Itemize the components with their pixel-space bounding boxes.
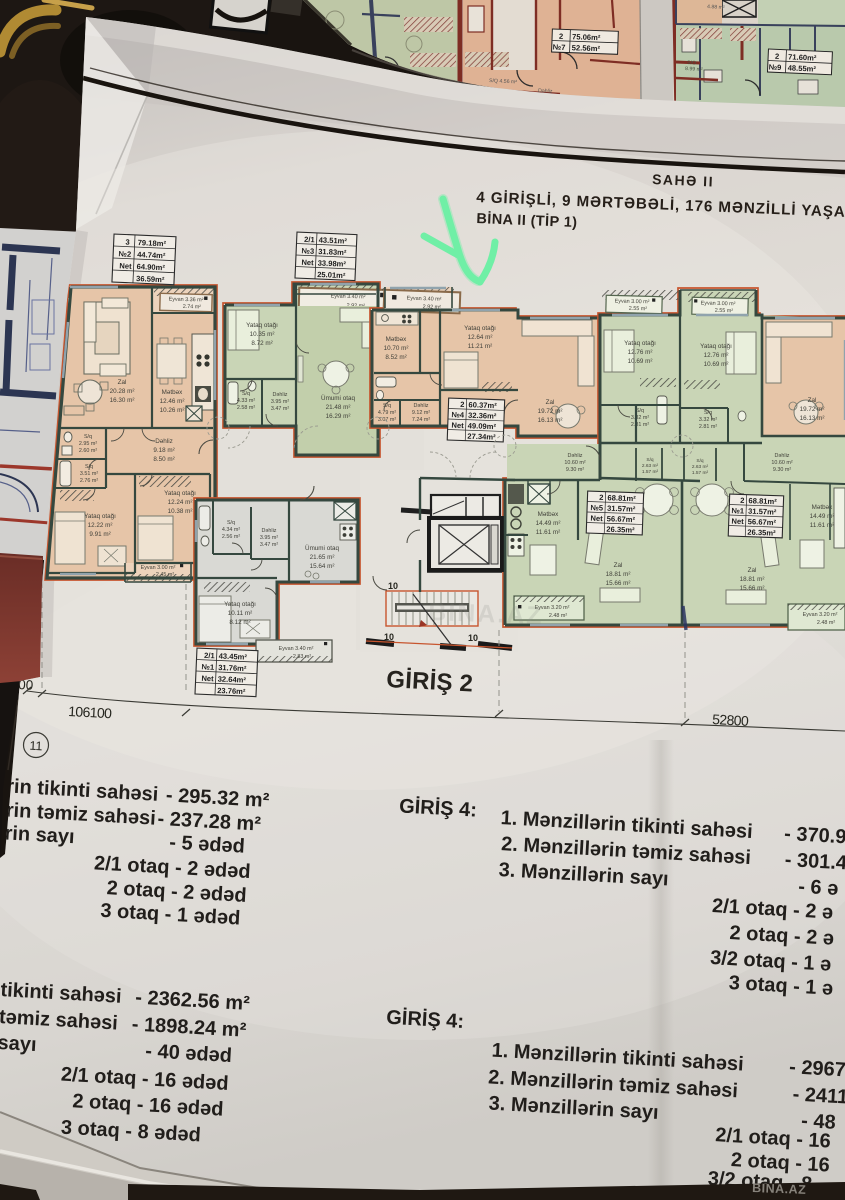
svg-text:19.72 m²: 19.72 m² [800,406,825,413]
svg-text:18.81 m²: 18.81 m² [740,576,765,583]
svg-text:1.57 m²: 1.57 m² [692,470,709,476]
svg-text:21.48 m²: 21.48 m² [326,404,351,411]
svg-text:3.47 m²: 3.47 m² [260,542,278,548]
svg-text:12.24 m²: 12.24 m² [168,499,193,506]
svg-text:20.28 m²: 20.28 m² [110,388,135,395]
svg-text:№1: №1 [731,506,745,515]
svg-text:21.65 m²: 21.65 m² [310,554,335,561]
svg-text:S/q: S/q [646,457,654,463]
svg-text:56.67m²: 56.67m² [748,517,777,527]
svg-text:44.74m²: 44.74m² [137,250,166,260]
svg-text:BINA.AZ: BINA.AZ [752,1181,807,1197]
svg-text:2.48 m²: 2.48 m² [817,620,835,626]
svg-text:Eyvan 3.40 m²: Eyvan 3.40 m² [279,646,314,652]
svg-text:1.57 m²: 1.57 m² [642,469,659,475]
svg-text:25.01m²: 25.01m² [317,270,346,280]
svg-text:GİRİŞ 4:: GİRİŞ 4: [386,1006,465,1033]
svg-text:2: 2 [559,32,564,41]
svg-text:16.13 m²: 16.13 m² [538,417,563,424]
svg-text:2.63 m²: 2.63 m² [692,464,709,470]
svg-text:8.52 m²: 8.52 m² [385,354,406,361]
svg-text:Ümumi otaq: Ümumi otaq [321,394,355,402]
svg-text:12.76 m²: 12.76 m² [628,349,653,356]
svg-text:2.48 m²: 2.48 m² [549,613,567,619]
svg-text:19.72 m²: 19.72 m² [538,408,563,415]
svg-text:8.72 m²: 8.72 m² [251,340,272,347]
svg-text:Net: Net [731,517,744,526]
svg-text:S/q: S/q [696,458,704,464]
svg-text:Eyvan 3.20 m²: Eyvan 3.20 m² [803,612,838,618]
svg-text:43.51m²: 43.51m² [318,235,347,245]
svg-text:BINA.AZ: BINA.AZ [428,598,544,630]
svg-text:SAHƏ II: SAHƏ II [652,171,714,189]
svg-text:2.81 m²: 2.81 m² [631,422,649,428]
svg-text:Net: Net [590,514,603,523]
svg-text:GİRİŞ 2: GİRİŞ 2 [386,666,474,698]
svg-text:№5: №5 [590,503,604,512]
svg-text:№2: №2 [118,249,131,259]
svg-text:Zal: Zal [614,562,623,569]
svg-text:- 5 ədəd: - 5 ədəd [169,832,246,858]
svg-text:Dəhliz: Dəhliz [155,438,173,445]
svg-text:14.49 m²: 14.49 m² [536,520,561,527]
svg-text:10.69 m²: 10.69 m² [628,358,653,365]
svg-text:Eyvan 3.00 m²: Eyvan 3.00 m² [615,298,650,305]
svg-text:Dəhliz: Dəhliz [414,403,429,409]
svg-text:27.34m²: 27.34m² [467,432,496,442]
svg-text:Eyvan 3.00 m²: Eyvan 3.00 m² [701,300,736,307]
svg-text:16.30 m²: 16.30 m² [110,397,135,404]
svg-text:2.60 m²: 2.60 m² [79,448,97,454]
svg-text:Zal: Zal [808,397,817,404]
svg-text:Yataq otağı: Yataq otağı [164,490,196,497]
svg-text:2: 2 [599,493,604,502]
svg-text:26.35m²: 26.35m² [747,528,776,538]
svg-text:36.59m²: 36.59m² [136,274,165,284]
svg-text:№9: №9 [768,63,781,73]
svg-text:Yataq otağı: Yataq otağı [624,340,656,347]
svg-text:Net: Net [451,421,464,430]
svg-text:2: 2 [775,52,780,61]
svg-text:Ümumi otaq: Ümumi otaq [305,544,339,552]
svg-text:7.24 m²: 7.24 m² [412,417,430,423]
svg-text:Yataq otağı: Yataq otağı [224,601,256,608]
svg-text:71.60m²: 71.60m² [788,52,817,62]
svg-text:Mətbəx: Mətbəx [538,511,560,518]
svg-text:10.26 m²: 10.26 m² [160,407,185,414]
svg-text:4.33 m²: 4.33 m² [237,398,255,404]
svg-text:Net: Net [119,261,132,271]
svg-text:2.95 m²: 2.95 m² [79,441,97,447]
svg-text:15.66 m²: 15.66 m² [606,580,631,587]
svg-text:12.76 m²: 12.76 m² [704,352,729,359]
svg-text:23.76m²: 23.76m² [217,686,246,696]
svg-text:№7: №7 [553,43,566,52]
svg-text:11: 11 [29,739,43,754]
svg-text:56.67m²: 56.67m² [607,514,636,524]
svg-text:31.57m²: 31.57m² [748,507,777,517]
svg-text:10: 10 [388,581,398,591]
svg-text:64.90m²: 64.90m² [136,262,165,272]
svg-text:Yataq otağı: Yataq otağı [246,322,278,329]
svg-text:31.57m²: 31.57m² [607,504,636,514]
svg-text:Net: Net [201,674,214,684]
svg-text:Mətbəx: Mətbəx [386,336,408,343]
svg-text:- 370.9: - 370.9 [784,823,845,848]
svg-text:Dəhliz: Dəhliz [262,528,277,534]
svg-text:Eyvan 3.00 m²: Eyvan 3.00 m² [141,565,176,571]
svg-text:8.12 m²: 8.12 m² [229,619,250,626]
svg-text:S/q: S/q [636,408,644,414]
svg-text:2.81 m²: 2.81 m² [699,424,717,430]
svg-text:2: 2 [740,496,745,505]
svg-text:2.76 m²: 2.76 m² [80,478,98,484]
svg-text:15.64 m²: 15.64 m² [310,563,335,570]
svg-text:Yataq otağı: Yataq otağı [700,343,732,350]
svg-text:№3: №3 [301,246,314,256]
svg-text:S/q: S/q [84,434,92,440]
svg-text:- 2411: - 2411 [792,1083,845,1108]
svg-text:2.63 m²: 2.63 m² [642,463,659,469]
svg-text:3.95 m²: 3.95 m² [260,535,278,541]
svg-text:Net: Net [301,258,314,268]
svg-text:S/q: S/q [227,520,235,526]
svg-text:2.83 m²: 2.83 m² [293,654,311,660]
svg-text:4.34 m²: 4.34 m² [222,527,240,533]
svg-text:16.13 m²: 16.13 m² [800,415,825,422]
svg-text:18.81 m²: 18.81 m² [606,571,631,578]
svg-text:2.56 m²: 2.56 m² [222,534,240,540]
svg-text:10.69 m²: 10.69 m² [704,361,729,368]
svg-text:49.09m²: 49.09m² [468,421,497,431]
svg-text:9.30 m²: 9.30 m² [566,467,584,473]
svg-text:8.99 m²: 8.99 m² [685,66,703,73]
svg-text:№1: №1 [201,662,215,672]
svg-text:12.22 m²: 12.22 m² [88,522,113,529]
svg-text:S/q: S/q [242,391,250,397]
svg-text:10.60 m²: 10.60 m² [564,460,585,466]
svg-text:Zal: Zal [118,379,127,386]
svg-text:rin sayı: rin sayı [4,822,75,848]
svg-text:3.51 m²: 3.51 m² [80,471,98,477]
svg-text:12.64 m²: 12.64 m² [468,334,493,341]
svg-text:12.46 m²: 12.46 m² [160,398,185,405]
svg-text:4.79 m²: 4.79 m² [378,410,396,416]
svg-text:52800: 52800 [712,711,750,729]
svg-text:Dəhliz: Dəhliz [568,453,583,459]
svg-text:79.18m²: 79.18m² [138,238,167,248]
svg-text:Dəhliz: Dəhliz [775,453,790,459]
svg-text:43.45m²: 43.45m² [218,651,247,661]
svg-text:2.55 m²: 2.55 m² [629,306,648,312]
svg-text:33.98m²: 33.98m² [317,258,346,268]
svg-text:2.55 m²: 2.55 m² [715,308,734,314]
svg-text:11.21 m²: 11.21 m² [468,343,492,350]
svg-text:GİRİŞ 4:: GİRİŞ 4: [399,794,478,821]
svg-text:Yataq otağı: Yataq otağı [84,513,116,520]
svg-text:32.36m²: 32.36m² [468,411,497,421]
svg-text:3.47 m²: 3.47 m² [271,406,289,412]
svg-text:48.55m²: 48.55m² [787,63,816,73]
svg-text:Eyvan 3.36 m²: Eyvan 3.36 m² [169,297,204,304]
svg-text:10: 10 [468,633,478,643]
svg-text:9.12 m²: 9.12 m² [412,410,430,416]
svg-text:15.66 m²: 15.66 m² [740,585,765,592]
svg-text:10.38 m²: 10.38 m² [168,508,193,515]
svg-text:- 2967: - 2967 [789,1056,845,1081]
svg-text:Zal: Zal [546,399,555,406]
svg-text:31.83m²: 31.83m² [318,247,347,257]
svg-text:26.35m²: 26.35m² [606,525,635,535]
svg-text:2: 2 [460,400,465,409]
svg-text:3: 3 [125,238,130,247]
svg-text:3.95 m²: 3.95 m² [271,399,289,405]
svg-text:Mətbəx: Mətbəx [162,389,184,396]
svg-text:32.64m²: 32.64m² [217,674,246,684]
svg-text:11.61 m²: 11.61 m² [536,529,560,536]
svg-text:10.35 m²: 10.35 m² [250,331,275,338]
svg-text:2/1: 2/1 [204,651,216,660]
svg-text:2.58 m²: 2.58 m² [237,405,255,411]
svg-text:75.06m²: 75.06m² [572,32,601,42]
svg-text:9.18 m²: 9.18 m² [153,447,174,454]
svg-text:Yataq otağı: Yataq otağı [464,325,496,332]
svg-text:2.74 m²: 2.74 m² [183,304,202,310]
svg-text:60.37m²: 60.37m² [468,400,497,410]
svg-text:31.76m²: 31.76m² [218,663,247,673]
svg-text:Dəhliz: Dəhliz [273,392,288,398]
svg-text:Zal: Zal [748,567,757,574]
svg-text:sayı: sayı [0,1032,37,1056]
svg-text:- 6 ə: - 6 ə [798,876,839,900]
svg-text:10.11 m²: 10.11 m² [228,610,252,617]
svg-text:106100: 106100 [68,703,113,721]
svg-text:10.70 m²: 10.70 m² [384,345,409,352]
svg-text:- 301.4: - 301.4 [784,849,845,874]
svg-text:10.60 m²: 10.60 m² [771,460,792,466]
svg-text:Eyvan 3.40 m²: Eyvan 3.40 m² [407,296,442,303]
svg-text:52.56m²: 52.56m² [572,43,601,53]
svg-text:3.32 m²: 3.32 m² [631,415,649,421]
svg-text:4.88 m²: 4.88 m² [707,4,725,11]
svg-text:8.50 m²: 8.50 m² [153,456,174,463]
svg-text:2/1: 2/1 [304,235,316,244]
svg-text:9.30 m²: 9.30 m² [773,467,791,473]
svg-text:68.81m²: 68.81m² [607,493,636,503]
svg-text:9.91 m²: 9.91 m² [89,531,110,538]
svg-text:№4: №4 [451,410,465,419]
svg-text:3.32 m²: 3.32 m² [699,417,717,423]
svg-text:68.81m²: 68.81m² [748,496,777,506]
svg-text:16.29 m²: 16.29 m² [326,413,351,420]
